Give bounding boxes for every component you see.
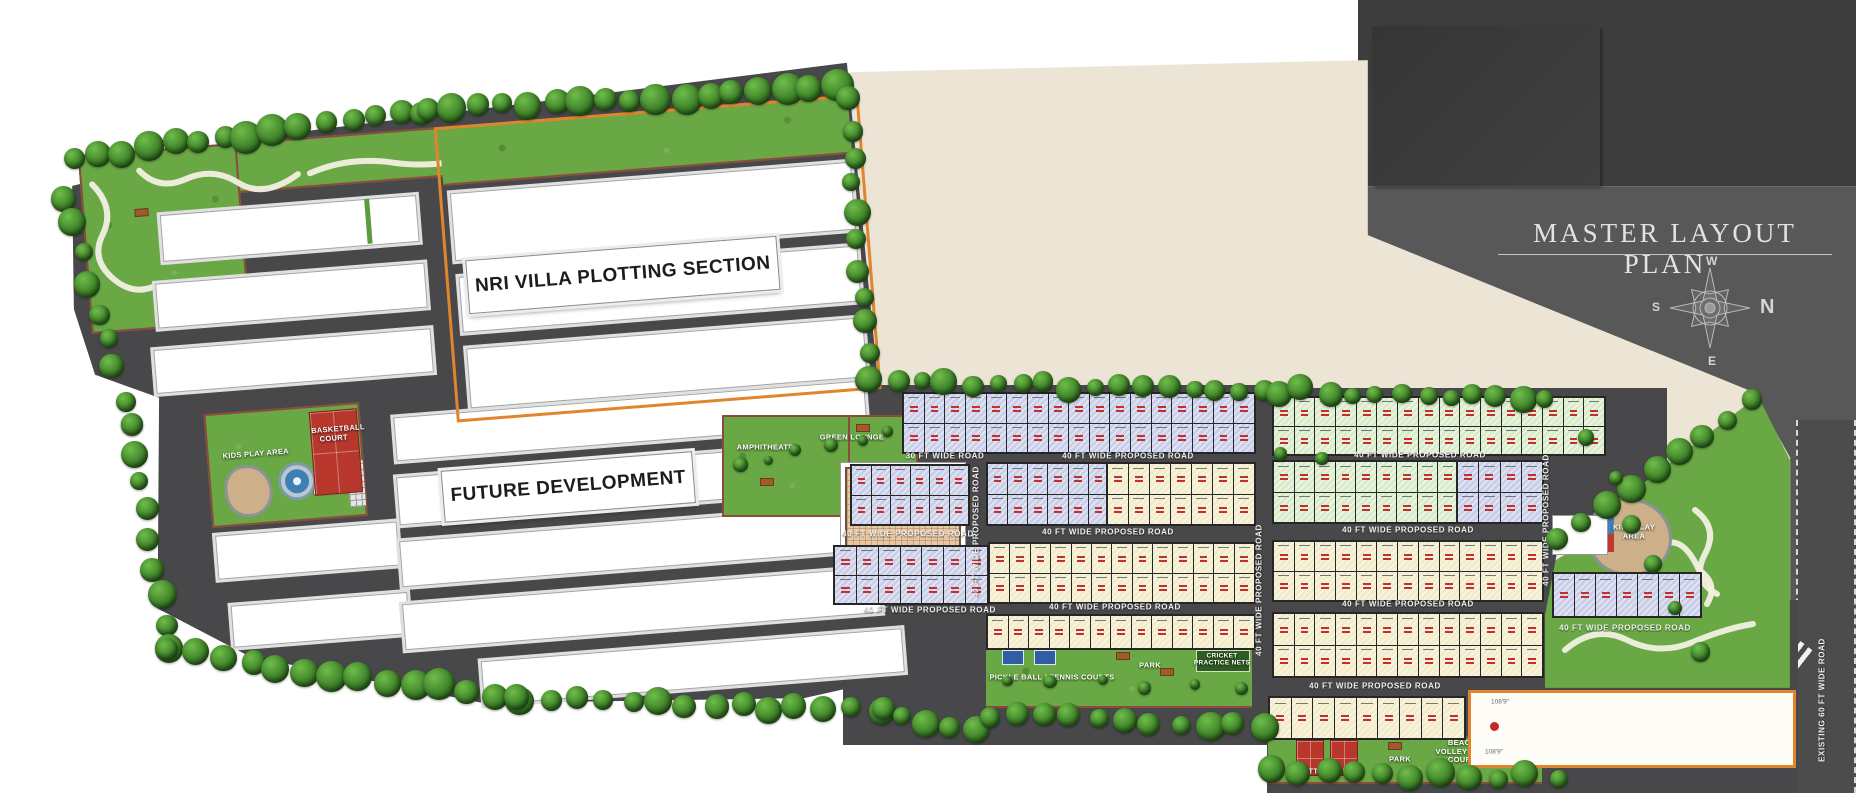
plot-cell (930, 466, 949, 495)
tree-icon (846, 229, 866, 249)
plot-cell (1108, 464, 1128, 494)
plot-cell (1152, 424, 1172, 453)
road-label: 40 FT WIDE PROPOSED ROAD (1049, 603, 1181, 612)
plot-cell (852, 496, 871, 525)
tree-icon (980, 707, 1000, 727)
plot-cell (1051, 574, 1070, 603)
tennis-court-icon (1002, 650, 1024, 665)
plot-cell (1194, 574, 1213, 603)
tree-icon (1113, 708, 1138, 733)
plot-cell (1213, 495, 1233, 525)
plot-cell (1502, 427, 1522, 455)
tree-icon (1258, 755, 1285, 782)
plot-cell (1458, 462, 1478, 492)
tree-icon (1285, 761, 1310, 786)
tree-icon (1456, 765, 1482, 791)
tree-icon (316, 111, 338, 133)
tree-icon (1644, 555, 1662, 573)
road-label: 40 FT WIDE PROPOSED ROAD (842, 530, 974, 539)
tree-icon (1090, 709, 1108, 727)
road-label: 40 FT WIDE PROPOSED ROAD (1255, 524, 1264, 656)
tree-icon (58, 208, 86, 236)
plot-cell (1132, 616, 1152, 648)
plot-cell (1173, 616, 1193, 648)
plot-cell (891, 496, 910, 525)
tree-icon (156, 615, 177, 636)
plot-cell (1194, 544, 1213, 573)
compass-right: N (1760, 296, 1774, 319)
plot-cell (1397, 462, 1417, 492)
plot-band (1272, 396, 1606, 456)
plot-cell (1110, 424, 1130, 453)
plot-cell (930, 496, 949, 525)
dimension-label: 108'9" (1491, 699, 1509, 706)
tree-icon (374, 670, 401, 697)
tree-icon (1287, 374, 1313, 400)
plot-cell (1171, 464, 1191, 494)
tree-icon (1443, 390, 1460, 407)
road-label: 40 FT WIDE PROPOSED ROAD (1354, 451, 1486, 460)
plot-cell (1234, 464, 1254, 494)
tree-icon (853, 309, 877, 333)
tree-icon (1319, 382, 1344, 407)
plot-cell (1172, 424, 1192, 453)
plot-cell (1274, 572, 1294, 601)
tree-icon (121, 413, 143, 435)
road-label: EXISTING 60 FT WIDE ROAD (1818, 638, 1827, 762)
tree-icon (134, 131, 164, 161)
plot-cell (1397, 493, 1417, 523)
plot-cell (1481, 646, 1501, 677)
plot-cell (925, 394, 945, 423)
plot-cell (1481, 542, 1501, 571)
road-label: 40 FT WIDE PROPOSED ROAD (864, 606, 996, 615)
tree-icon (437, 93, 466, 122)
tree-icon (594, 88, 617, 111)
plot-cell (1274, 614, 1294, 645)
plot-cell (990, 544, 1009, 573)
plot-cell (1440, 646, 1460, 677)
tree-icon (156, 638, 178, 660)
tree-icon (130, 472, 148, 490)
plot-cell (988, 464, 1007, 494)
tree-icon (1420, 387, 1438, 405)
plot-cell (1292, 698, 1313, 738)
plot-cell (901, 547, 922, 575)
info-panel-emboss (1372, 26, 1600, 186)
plot-cell (1440, 542, 1460, 571)
tree-icon (1002, 676, 1012, 686)
tree-icon (1511, 760, 1538, 787)
tree-icon (1609, 471, 1623, 485)
plot-cell (1112, 574, 1131, 603)
plot-cell (1214, 544, 1233, 573)
plot-cell (944, 576, 965, 604)
tree-icon (845, 148, 866, 169)
road-label: 40 FT WIDE PROPOSED ROAD (1559, 624, 1691, 633)
plot-cell (922, 547, 943, 575)
tree-icon (1172, 716, 1191, 735)
plot-cell (1295, 398, 1315, 426)
plot-cell (1377, 398, 1397, 426)
plot-cell (1049, 424, 1069, 453)
plot-cell (1050, 616, 1070, 648)
plot-cell (1336, 646, 1356, 677)
plot-cell (988, 616, 1008, 648)
plot-cell (1028, 394, 1048, 423)
plot-cell (1235, 574, 1254, 603)
plot-cell (1048, 495, 1067, 525)
plot-cell (1028, 464, 1047, 494)
plot-cell (1295, 493, 1315, 523)
tree-icon (619, 90, 640, 111)
plot-cell (1422, 698, 1443, 738)
tree-icon (1186, 381, 1204, 399)
plot-cell (987, 424, 1007, 453)
plot-cell (1418, 493, 1438, 523)
plot-cell (1336, 427, 1356, 455)
plot-cell (1007, 394, 1027, 423)
road-label: 40 FT WIDE PROPOSED ROAD (1062, 452, 1194, 461)
plot-cell (1522, 493, 1542, 523)
master-plan-canvas: MASTER LAYOUT PLAN W N E S (0, 0, 1856, 793)
plot-cell (1274, 493, 1294, 523)
plot-cell (1051, 544, 1070, 573)
plot-cell (966, 424, 986, 453)
plot-cell (879, 547, 900, 575)
plot-cell (1400, 698, 1421, 738)
plot-cell (1008, 464, 1027, 494)
plot-cell (1336, 462, 1356, 492)
tree-icon (732, 692, 756, 716)
plot-cell (1133, 574, 1152, 603)
plot-cell (1315, 462, 1335, 492)
tree-icon (1489, 770, 1508, 789)
tree-icon (1014, 374, 1033, 393)
plot-cell (1091, 616, 1111, 648)
plot-band (1272, 540, 1544, 602)
tree-icon (1644, 456, 1671, 483)
plot-cell (1031, 574, 1050, 603)
tree-icon (672, 695, 695, 718)
tree-icon (1043, 675, 1056, 688)
tree-icon (492, 93, 512, 113)
tree-icon (962, 376, 983, 397)
plot-cell (879, 576, 900, 604)
plot-cell (1274, 646, 1294, 677)
tree-icon (1098, 675, 1108, 685)
plot-cell (1153, 544, 1172, 573)
tree-icon (644, 687, 672, 715)
title-underline (1498, 254, 1832, 255)
plot-cell (1357, 572, 1377, 601)
plot-band (1272, 612, 1544, 678)
compass-top: W (1706, 254, 1717, 268)
compass-left: S (1652, 300, 1660, 314)
plot-cell (1584, 398, 1604, 426)
tree-icon (930, 368, 957, 395)
plot-cell (1357, 646, 1377, 677)
tree-icon (1108, 374, 1130, 396)
plot-band (986, 614, 1256, 650)
tree-icon (1251, 713, 1279, 741)
tree-icon (343, 109, 366, 132)
plot-band (1272, 460, 1460, 524)
plot-cell (904, 424, 924, 453)
plot-cell (1214, 574, 1233, 603)
plot-cell (1090, 394, 1110, 423)
plot-cell (1419, 572, 1439, 601)
open-block (1468, 690, 1796, 768)
plot-band (833, 545, 989, 605)
plot-band (1268, 696, 1466, 740)
tree-icon (842, 173, 860, 191)
plot-cell (1069, 424, 1089, 453)
bench-icon (1388, 742, 1402, 750)
plot-cell (1357, 542, 1377, 571)
tree-icon (795, 75, 822, 102)
plot-cell (1335, 698, 1356, 738)
basketball-court-label: BASKETBALL COURT (311, 424, 356, 445)
plot-cell (1377, 614, 1397, 645)
plot-cell (1010, 544, 1029, 573)
bench-icon (134, 208, 149, 217)
tree-icon (290, 659, 318, 687)
plot-cell (852, 466, 871, 495)
plot-cell (1295, 646, 1315, 677)
tree-icon (856, 366, 882, 392)
plot-cell (1092, 544, 1111, 573)
road-label: 40 FT WIDE PROPOSED ROAD (1542, 454, 1551, 586)
plot-cell (1419, 614, 1439, 645)
plot-cell (1152, 616, 1172, 648)
tree-icon (860, 343, 880, 363)
plot-cell (990, 574, 1009, 603)
tree-icon (1033, 371, 1053, 391)
plot-cell (1129, 495, 1149, 525)
plot-cell (922, 576, 943, 604)
plot-cell (1460, 572, 1480, 601)
nri-villa-section: NRI VILLA PLOTTING SECTION (434, 94, 882, 423)
plot-cell (987, 394, 1007, 423)
plot-cell (950, 466, 969, 495)
tree-icon (1571, 513, 1590, 532)
plot-cell (1315, 542, 1335, 571)
compass-bottom: E (1708, 354, 1716, 368)
tree-icon (1056, 377, 1081, 402)
plot-cell (1112, 544, 1131, 573)
tree-icon (872, 697, 895, 720)
tree-icon (99, 354, 123, 378)
tree-icon (1593, 491, 1621, 519)
plot-cell (835, 547, 856, 575)
plot-cell (1398, 646, 1418, 677)
tree-icon (1137, 713, 1160, 736)
plot-cell (1502, 614, 1522, 645)
plot-cell (1378, 698, 1399, 738)
plot-cell (1153, 574, 1172, 603)
plot-cell (945, 424, 965, 453)
plot-cell (1129, 464, 1149, 494)
plot-cell (1313, 698, 1334, 738)
plot-cell (1357, 614, 1377, 645)
plot-cell (1522, 542, 1542, 571)
plot-cell (1377, 572, 1397, 601)
plot-cell (1028, 495, 1047, 525)
tennis-court-icon (1034, 650, 1056, 665)
tree-icon (136, 497, 159, 520)
tree-icon (1372, 763, 1393, 784)
tree-icon (100, 329, 118, 347)
plot-cell (911, 466, 930, 495)
plot-cell (966, 394, 986, 423)
plot-cell (944, 547, 965, 575)
tree-icon (1230, 383, 1248, 401)
plot-band (1456, 460, 1544, 524)
plot-cell (1460, 646, 1480, 677)
tree-icon (882, 426, 893, 437)
plot-cell (1234, 424, 1254, 453)
plot-cell (1108, 495, 1128, 525)
plot-cell (1315, 427, 1335, 455)
plot-cell (945, 394, 965, 423)
plot-cell (1048, 464, 1067, 494)
tree-icon (858, 435, 868, 445)
plot-cell (1479, 462, 1499, 492)
plot-cell (1638, 574, 1658, 616)
plot-cell (1418, 462, 1438, 492)
tree-icon (888, 370, 910, 392)
plot-cell (925, 424, 945, 453)
cricket-nets-label: CRICKET PRACTICE NETS (1192, 653, 1252, 668)
tree-icon (705, 694, 730, 719)
plot-cell (1522, 427, 1542, 455)
plot-cell (1501, 462, 1521, 492)
tree-icon (1536, 390, 1553, 407)
plot-cell (1235, 544, 1254, 573)
marker-dot (1490, 722, 1499, 731)
plot-cell (1617, 574, 1637, 616)
plot-cell (1522, 462, 1542, 492)
tree-icon (810, 696, 836, 722)
tree-icon (423, 668, 455, 700)
plot-cell (1377, 542, 1397, 571)
plot-cell (1460, 542, 1480, 571)
plot-band (850, 464, 970, 526)
plot-cell (1029, 616, 1049, 648)
tree-icon (89, 305, 110, 326)
tree-icon (1006, 702, 1029, 725)
tree-icon (108, 141, 135, 168)
plot-cell (857, 576, 878, 604)
plot-cell (1377, 646, 1397, 677)
plot-cell (1295, 462, 1315, 492)
plot-cell (1133, 544, 1152, 573)
tree-icon (846, 260, 869, 283)
plot-cell (1398, 542, 1418, 571)
plot-cell (1192, 464, 1212, 494)
plot-cell (1522, 572, 1542, 601)
plot-cell (1173, 544, 1192, 573)
plot-cell (1009, 616, 1029, 648)
tree-icon (210, 645, 237, 672)
plot-cell (1295, 614, 1315, 645)
tree-icon (1742, 389, 1763, 410)
plot-cell (1214, 424, 1234, 453)
plot-cell (1072, 574, 1091, 603)
plot-cell (1274, 542, 1294, 571)
tree-icon (1691, 642, 1711, 662)
plot-cell (1295, 427, 1315, 455)
plot-block (466, 317, 867, 408)
bench-icon (1160, 668, 1174, 676)
road-label: 40 FT WIDE PROPOSED ROAD (1042, 528, 1174, 537)
plot-cell (1336, 614, 1356, 645)
plot-cell (1192, 495, 1212, 525)
plot-cell (1564, 398, 1584, 426)
plot-cell (1502, 572, 1522, 601)
tree-icon (467, 93, 489, 115)
plot-cell (1008, 495, 1027, 525)
tree-icon (514, 92, 542, 120)
road-label: 30 FT WIDE ROAD (906, 452, 985, 461)
dimension-label: 108'9" (1485, 749, 1503, 756)
tree-icon (261, 655, 289, 683)
plot-cell (1336, 493, 1356, 523)
plot-cell (1440, 614, 1460, 645)
plot-cell (1131, 424, 1151, 453)
plot-cell (1315, 646, 1335, 677)
plot-cell (1479, 493, 1499, 523)
tree-icon (148, 580, 177, 609)
plot-cell (1007, 424, 1027, 453)
plot-cell (1377, 493, 1397, 523)
plot-cell (1543, 427, 1563, 455)
road-label: 40 FT WIDE PROPOSED ROAD (1342, 526, 1474, 535)
tree-icon (1235, 682, 1248, 695)
plot-cell (1152, 394, 1172, 423)
plot-cell (1111, 616, 1131, 648)
tree-icon (454, 680, 479, 705)
plot-cell (1481, 572, 1501, 601)
tree-icon (566, 686, 588, 708)
plot-cell (1522, 614, 1542, 645)
plot-cell (1680, 574, 1700, 616)
tree-icon (1392, 384, 1412, 404)
tree-icon (187, 131, 209, 153)
plot-cell (1172, 394, 1192, 423)
plot-band (1106, 462, 1256, 526)
plot-band (986, 462, 1110, 526)
plot-cell (872, 466, 891, 495)
tree-icon (1344, 388, 1361, 405)
bench-icon (856, 424, 870, 432)
tree-icon (163, 128, 189, 154)
plot-cell (1193, 424, 1213, 453)
park-mid-label: PARK (1139, 662, 1161, 671)
plot-cell (1274, 462, 1294, 492)
basketball-court (309, 408, 363, 496)
plot-cell (1031, 544, 1050, 573)
plot-cell (1440, 572, 1460, 601)
plot-cell (1069, 464, 1088, 494)
tree-icon (719, 80, 743, 104)
road-label: 40 FT WIDE PROPOSED ROAD (972, 466, 981, 598)
plot-cell (1357, 698, 1378, 738)
plot-cell (1234, 616, 1254, 648)
plot-cell (901, 576, 922, 604)
tree-icon (1221, 712, 1244, 735)
